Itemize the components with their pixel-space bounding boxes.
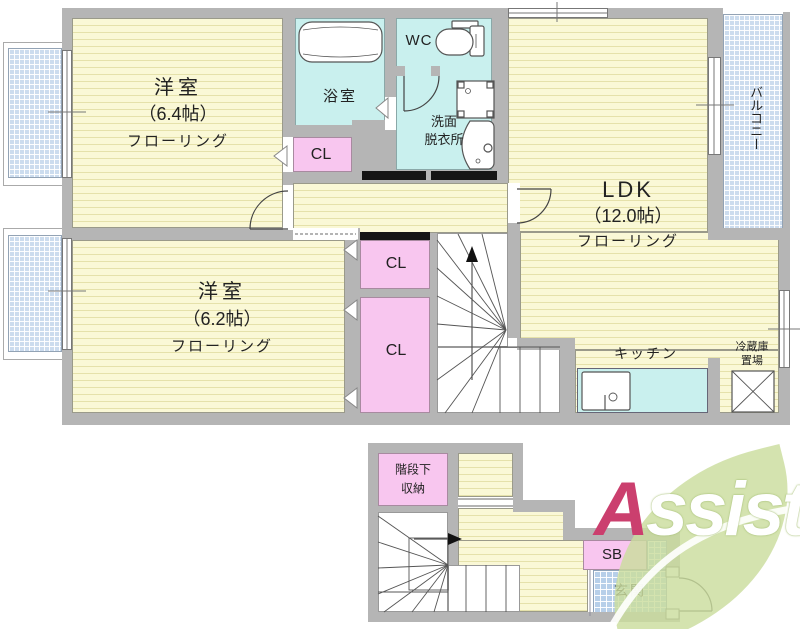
open-boundary-hall bbox=[293, 228, 358, 240]
hallway-floor bbox=[293, 183, 508, 233]
wall-bed1-bath bbox=[283, 18, 295, 133]
wall-bed2-right bbox=[345, 228, 360, 413]
bedroom1-size: （6.4帖） bbox=[138, 105, 217, 125]
doorway-bathroom bbox=[385, 97, 396, 130]
bathroom-floor bbox=[295, 18, 385, 133]
wall-bed1-bottom bbox=[62, 228, 293, 240]
bathroom-label: 浴室 bbox=[323, 89, 357, 106]
fridge-label-1: 冷蔵庫 bbox=[736, 341, 769, 353]
stairs-lower-well bbox=[378, 512, 448, 612]
stairs-upper-well bbox=[437, 233, 508, 347]
lf-wall-step2 bbox=[563, 500, 575, 540]
wall-cl-mid bbox=[358, 289, 430, 297]
window-bedroom1 bbox=[62, 50, 72, 178]
closet-lower-label: CL bbox=[386, 342, 406, 360]
wall-top bbox=[62, 8, 723, 18]
corridor-opening bbox=[458, 497, 513, 508]
stairs-lower-run bbox=[448, 565, 520, 612]
wall-wc-jamb-right bbox=[431, 66, 440, 76]
slide-door-washroom-left bbox=[362, 171, 426, 180]
bedroom2-floor-type: フローリング bbox=[171, 339, 273, 356]
bedroom2-size: （6.2帖） bbox=[182, 310, 261, 330]
assist-logo-letter-a: A bbox=[594, 467, 646, 552]
under-stair-storage-label-2: 収納 bbox=[401, 482, 425, 495]
ldk-name: LDK bbox=[602, 178, 654, 202]
ldk-floor-type: フローリング bbox=[577, 234, 679, 251]
window-ldk-right bbox=[779, 290, 790, 368]
balcony-left-2-outline bbox=[3, 228, 65, 360]
fridge-label-2: 置場 bbox=[741, 355, 763, 367]
wall-bath-bottom bbox=[283, 125, 352, 137]
stairs-upper-run bbox=[437, 347, 560, 413]
balcony-label: バルコニー bbox=[748, 86, 762, 151]
lf-wall-stairs-corridor bbox=[448, 443, 458, 565]
kitchen-counter bbox=[577, 368, 708, 413]
window-balcony bbox=[708, 57, 721, 155]
window-bedroom2 bbox=[62, 238, 72, 350]
lf-wall-left bbox=[368, 443, 378, 622]
corridor-upper-floor bbox=[458, 453, 513, 497]
doorway-bedroom1 bbox=[283, 185, 293, 230]
lf-wall-storage-bottom bbox=[378, 506, 448, 512]
bedroom1-name: 洋室 bbox=[154, 77, 202, 99]
slide-door-washroom-right bbox=[431, 171, 497, 180]
wall-wc-jamb-left bbox=[396, 66, 405, 76]
lf-wall-top bbox=[368, 443, 523, 453]
floor-plan: 洋室 （6.4帖） フローリング 洋室 （6.2帖） フローリング LDK （1… bbox=[0, 0, 800, 629]
doorway-ldk bbox=[508, 183, 520, 223]
wall-counter-right bbox=[708, 358, 720, 413]
closet-bath-label: CL bbox=[311, 146, 331, 164]
under-stair-storage-floor bbox=[378, 453, 448, 506]
wc-label: WC bbox=[406, 33, 433, 50]
wall-bottom bbox=[62, 413, 790, 425]
balcony-left-1-outline bbox=[3, 42, 65, 186]
wall-cl-stairs bbox=[430, 233, 437, 413]
wall-cl-bottom bbox=[283, 172, 362, 183]
wall-kitchen-step bbox=[517, 338, 575, 350]
washroom-label-1: 洗面 bbox=[431, 115, 457, 129]
assist-logo-rest: ssist bbox=[646, 467, 800, 552]
kitchen-label: キッチン bbox=[614, 346, 678, 361]
washroom-label-2: 脱衣所 bbox=[424, 133, 463, 147]
wall-kitchen-left bbox=[560, 350, 575, 413]
window-ldk-top bbox=[508, 8, 608, 18]
assist-logo-text: Assist bbox=[594, 472, 800, 548]
wall-wash-ldk bbox=[492, 8, 508, 183]
closet-upper-label: CL bbox=[386, 255, 406, 273]
bedroom2-name: 洋室 bbox=[198, 281, 246, 303]
wall-balcony-outer bbox=[783, 12, 790, 232]
bedroom1-floor-type: フローリング bbox=[127, 134, 229, 151]
under-stair-storage-label-1: 階段下 bbox=[395, 463, 431, 476]
ldk-size: （12.0帖） bbox=[583, 207, 672, 227]
slide-door-closet-upper bbox=[360, 232, 430, 240]
